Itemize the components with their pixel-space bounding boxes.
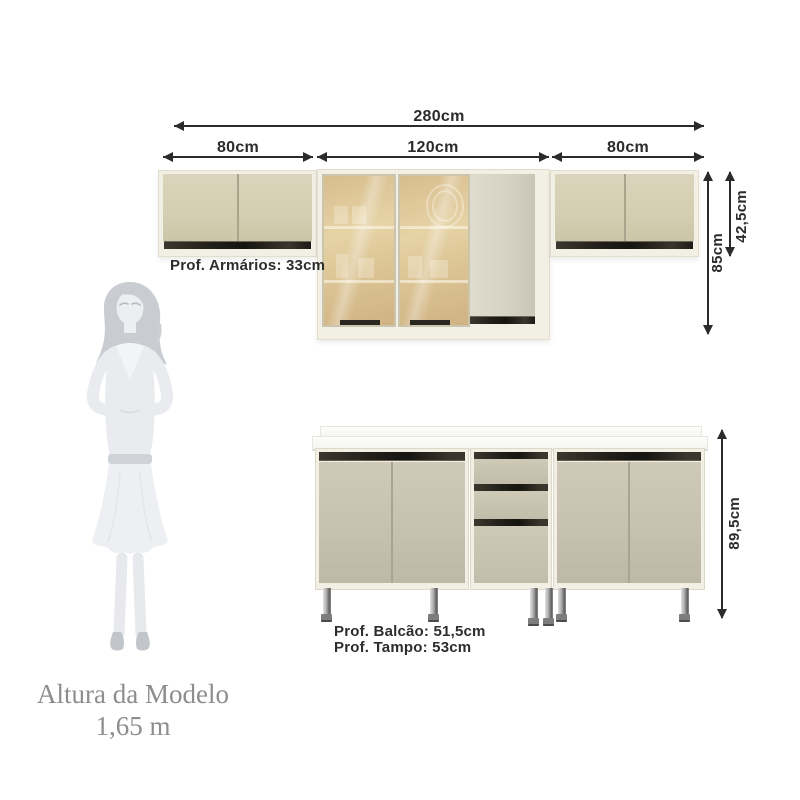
base-module-left xyxy=(315,448,469,590)
dim-left-cabinet-width-arrow: 80cm xyxy=(163,156,313,158)
glass-reflection xyxy=(400,176,468,325)
base-module-drawers xyxy=(470,448,552,590)
dim-left-cabinet-width-label: 80cm xyxy=(217,139,259,157)
model-silhouette-svg xyxy=(68,276,192,658)
dim-tall-cabinet-height-label: 85cm xyxy=(709,198,726,308)
leg-foot xyxy=(679,614,690,622)
base-left-doors xyxy=(319,462,465,583)
cabinet-leg xyxy=(545,588,553,618)
dim-right-cabinet-width-label: 80cm xyxy=(607,139,649,157)
leg-foot xyxy=(556,614,567,622)
upper-depth-label: Prof. Armários: 33cm xyxy=(170,257,325,274)
cabinet-leg xyxy=(530,588,538,618)
leg-foot xyxy=(528,618,539,626)
model-height-caption-line2: 1,65 m xyxy=(18,710,248,742)
upper-right-doors xyxy=(555,174,694,241)
cabinet-door xyxy=(557,462,628,583)
cabinet-leg xyxy=(558,588,566,614)
cabinet-door xyxy=(239,174,313,241)
leg-foot xyxy=(428,614,439,622)
cabinet-door xyxy=(393,462,465,583)
base-right-doors xyxy=(557,462,701,583)
dim-center-cabinet-width-arrow: 120cm xyxy=(317,156,549,158)
tall-solid-door xyxy=(470,174,535,323)
glass-door-handle xyxy=(410,320,450,325)
leg-foot xyxy=(321,614,332,622)
upper-cabinet-center-tall xyxy=(317,169,550,340)
upper-cabinet-right xyxy=(550,170,699,257)
handle-recess xyxy=(470,316,535,324)
cabinet-door xyxy=(630,462,701,583)
cabinet-door xyxy=(626,174,695,241)
cabinet-leg xyxy=(681,588,689,614)
handle-recess xyxy=(319,452,465,461)
model-height-caption-line1: Altura da Modelo xyxy=(18,678,248,710)
base-depth-label: Prof. Balcão: 51,5cm xyxy=(334,623,486,640)
dim-short-cabinet-height-arrow xyxy=(729,172,731,256)
glass-reflection xyxy=(324,176,394,325)
dim-right-cabinet-width-arrow: 80cm xyxy=(552,156,704,158)
dim-total-width-arrow: 280cm xyxy=(174,125,704,127)
leg-foot xyxy=(543,618,554,626)
glass-door-left xyxy=(322,174,396,327)
glass-door-right xyxy=(398,174,470,327)
countertop-depth-label: Prof. Tampo: 53cm xyxy=(334,639,471,656)
dim-total-width-label: 280cm xyxy=(413,108,464,126)
handle-recess xyxy=(557,452,701,461)
cabinet-door xyxy=(163,174,237,241)
dim-base-height-label: 89,5cm xyxy=(726,468,743,578)
glass-door-handle xyxy=(340,320,380,325)
drawer xyxy=(474,459,548,484)
cabinet-door xyxy=(555,174,624,241)
cabinet-leg xyxy=(430,588,438,614)
drawer xyxy=(474,491,548,519)
dim-center-cabinet-width-label: 120cm xyxy=(407,139,458,157)
drawer xyxy=(474,526,548,583)
dim-base-height-arrow xyxy=(721,430,723,618)
model-silhouette xyxy=(68,276,192,658)
handle-recess xyxy=(556,241,693,249)
cabinet-door xyxy=(319,462,391,583)
dim-short-cabinet-height-label: 42,5cm xyxy=(733,168,750,264)
upper-left-doors xyxy=(163,174,312,241)
model-height-caption: Altura da Modelo 1,65 m xyxy=(18,678,248,742)
cabinet-leg xyxy=(323,588,331,614)
kitchen-dimension-diagram: 280cm 80cm 120cm 80cm xyxy=(0,0,800,800)
base-module-right xyxy=(553,448,705,590)
handle-recess xyxy=(164,241,311,249)
upper-cabinet-left xyxy=(158,170,317,257)
